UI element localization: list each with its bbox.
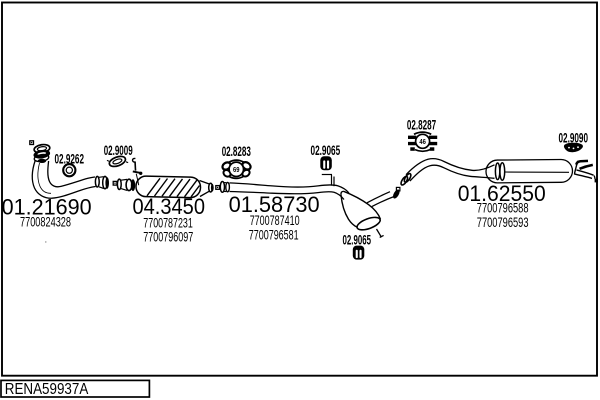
svg-text:02.9009: 02.9009 bbox=[104, 143, 133, 159]
svg-text:02.9065: 02.9065 bbox=[311, 143, 341, 159]
svg-text:7700787410: 7700787410 bbox=[250, 213, 300, 228]
svg-text:7700796581: 7700796581 bbox=[249, 228, 299, 243]
svg-text:7700824328: 7700824328 bbox=[20, 215, 71, 230]
svg-text:7700796588: 7700796588 bbox=[477, 201, 529, 216]
svg-text:7700796097: 7700796097 bbox=[143, 230, 193, 245]
svg-text:7700796593: 7700796593 bbox=[477, 215, 529, 230]
svg-text:02.8287: 02.8287 bbox=[407, 117, 436, 133]
svg-text:02.9090: 02.9090 bbox=[559, 131, 589, 147]
svg-text:02.9262: 02.9262 bbox=[55, 151, 85, 167]
svg-text:46: 46 bbox=[419, 137, 426, 146]
svg-text:02.8283: 02.8283 bbox=[222, 144, 251, 160]
svg-text:02.9065: 02.9065 bbox=[343, 232, 372, 248]
svg-text:69: 69 bbox=[233, 165, 240, 174]
svg-text:RENA59937A: RENA59937A bbox=[5, 381, 89, 398]
svg-text:7700787231: 7700787231 bbox=[143, 215, 193, 230]
